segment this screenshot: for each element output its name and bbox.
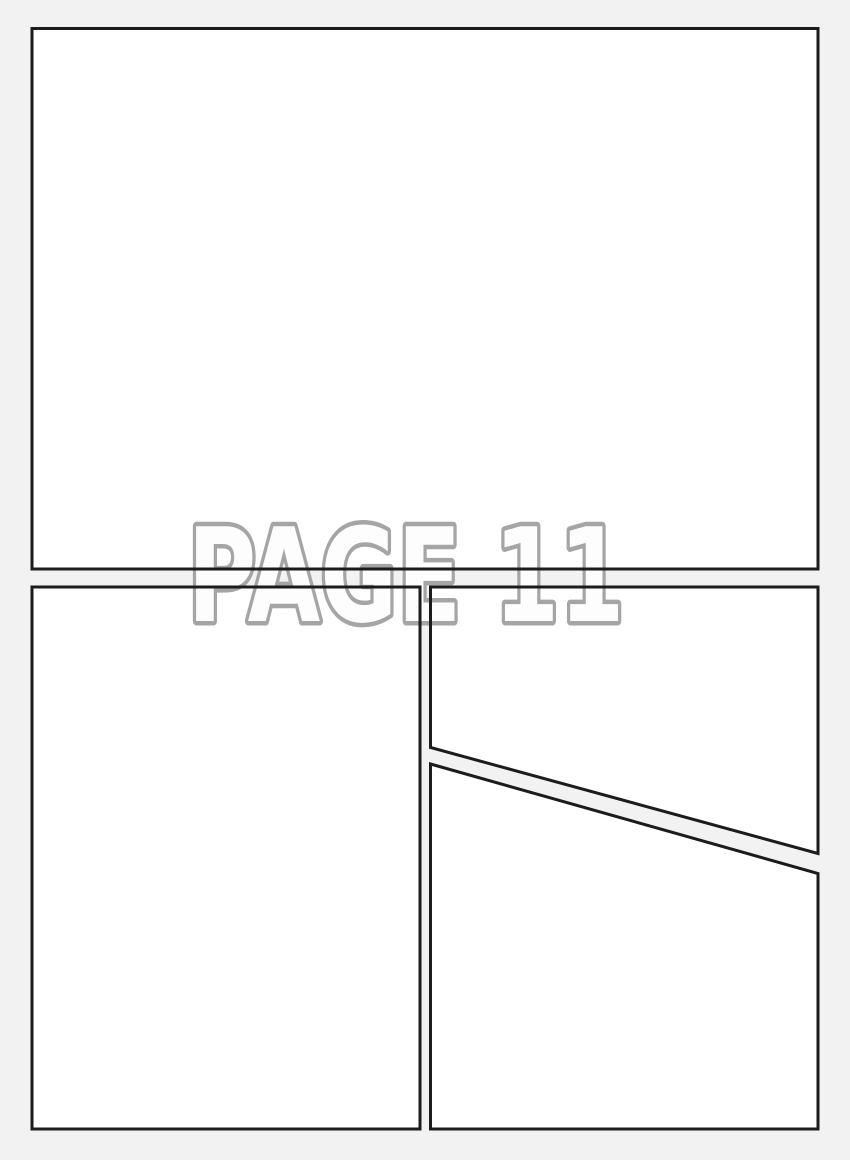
panel-bottom-left-fill	[32, 587, 420, 1129]
panel-top-fill	[32, 29, 818, 570]
page-number-label: PAGE 11	[188, 500, 625, 652]
comic-page-template: PAGE 11	[0, 0, 850, 1160]
comic-page-canvas: PAGE 11	[0, 0, 850, 1160]
